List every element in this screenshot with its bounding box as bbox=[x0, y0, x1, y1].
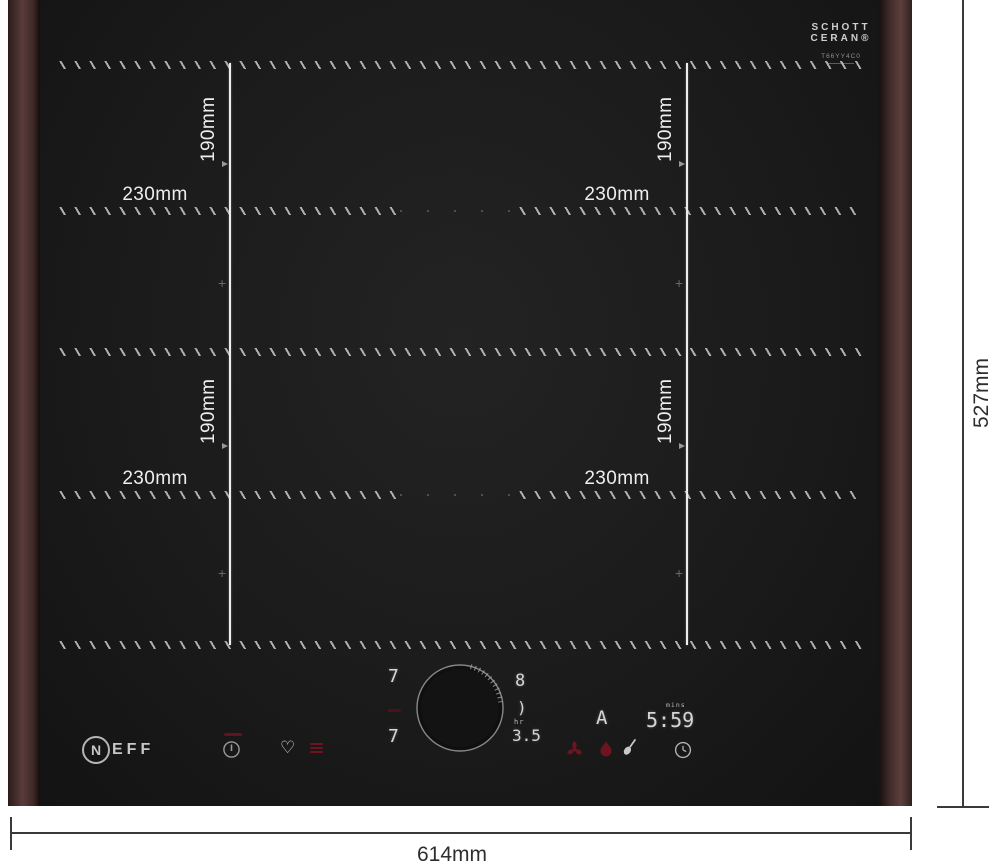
hours-value-display: 3.5 bbox=[512, 726, 541, 745]
zone-width-line-row2-right bbox=[518, 491, 862, 499]
zone-height-label-bottom-right: 190mm bbox=[655, 370, 677, 452]
neff-logo-n: N bbox=[91, 742, 101, 758]
width-dimension-right-tick bbox=[910, 817, 912, 850]
schott-ceran-logo: SCHOTT CERAN® T66YY4C0 bbox=[810, 22, 872, 64]
left-zone-indicator-dash bbox=[388, 709, 401, 712]
auto-indicator-display: A bbox=[596, 707, 607, 729]
height-dimension-end-tick bbox=[937, 806, 989, 808]
zone-height-label-bottom-left: 190mm bbox=[198, 370, 220, 452]
zone-width-label-top-right: 230mm bbox=[577, 184, 657, 206]
height-dimension-line bbox=[962, 0, 964, 807]
zone-width-label-top-left: 230mm bbox=[115, 184, 195, 206]
hours-unit-label: hr bbox=[514, 718, 524, 726]
schott-line2: CERAN® bbox=[810, 33, 872, 44]
neff-logo-text: EFF bbox=[112, 741, 154, 759]
zone-center-marker: + bbox=[218, 276, 226, 290]
width-dimension-left-tick bbox=[10, 817, 12, 850]
indicator-dash bbox=[224, 733, 242, 736]
zone-width-line-row1-left bbox=[58, 207, 398, 215]
zone-center-marker: + bbox=[675, 566, 683, 580]
left-zone-bottom-level-display: 7 bbox=[388, 726, 399, 747]
zone-height-label-top-left: 190mm bbox=[198, 88, 220, 170]
dimension-arrow-icon bbox=[679, 161, 685, 167]
right-zone-top-level-display: 8 bbox=[515, 671, 525, 691]
zone-height-line-left bbox=[229, 63, 231, 645]
zone-center-marker: + bbox=[218, 566, 226, 580]
zone-width-gap-row2 bbox=[400, 494, 515, 496]
hob-left-trim bbox=[8, 0, 40, 806]
zone-width-line-row2-left bbox=[58, 491, 398, 499]
favorite-heart-icon[interactable]: ♡ bbox=[280, 739, 295, 756]
neff-logo-circle: N bbox=[82, 736, 110, 764]
zone-hatch-line-bottom bbox=[58, 641, 862, 649]
zone-width-label-bottom-right: 230mm bbox=[577, 468, 657, 490]
ventilation-fan-icon[interactable] bbox=[566, 741, 583, 763]
cooking-spoon-icon[interactable] bbox=[620, 736, 640, 763]
zone-center-marker: + bbox=[675, 276, 683, 290]
timer-clock-icon[interactable] bbox=[674, 741, 692, 764]
schott-line1: SCHOTT bbox=[810, 22, 872, 33]
zone-hatch-line-top bbox=[58, 61, 862, 69]
left-zone-top-level-display: 7 bbox=[388, 666, 399, 687]
dimension-arrow-icon bbox=[222, 161, 228, 167]
zone-width-line-row1-right bbox=[518, 207, 862, 215]
width-dimension-line bbox=[10, 832, 912, 834]
right-zone-mid-display: ) bbox=[517, 698, 527, 717]
model-number: T66YY4C0 bbox=[810, 53, 872, 60]
zone-hatch-line-middle bbox=[58, 348, 862, 356]
zone-height-line-right bbox=[686, 63, 688, 645]
menu-lines-icon[interactable] bbox=[310, 743, 323, 753]
dimension-arrow-icon bbox=[679, 443, 685, 449]
product-dimension-diagram: SCHOTT CERAN® T66YY4C0 190mm 190mm 190mm… bbox=[0, 0, 1000, 866]
power-icon[interactable] bbox=[222, 740, 241, 764]
twistpad-knob[interactable] bbox=[414, 662, 506, 759]
overall-height-label: 527mm bbox=[970, 335, 994, 450]
dimension-arrow-icon bbox=[222, 443, 228, 449]
flame-icon[interactable] bbox=[598, 740, 614, 763]
hob-right-trim bbox=[880, 0, 912, 806]
zone-width-gap-row1 bbox=[400, 210, 515, 212]
overall-width-label: 614mm bbox=[392, 843, 512, 866]
timer-display: 5:59 bbox=[646, 708, 694, 732]
zone-width-label-bottom-left: 230mm bbox=[115, 468, 195, 490]
neff-logo: N EFF bbox=[82, 736, 154, 764]
zone-height-label-top-right: 190mm bbox=[655, 88, 677, 170]
